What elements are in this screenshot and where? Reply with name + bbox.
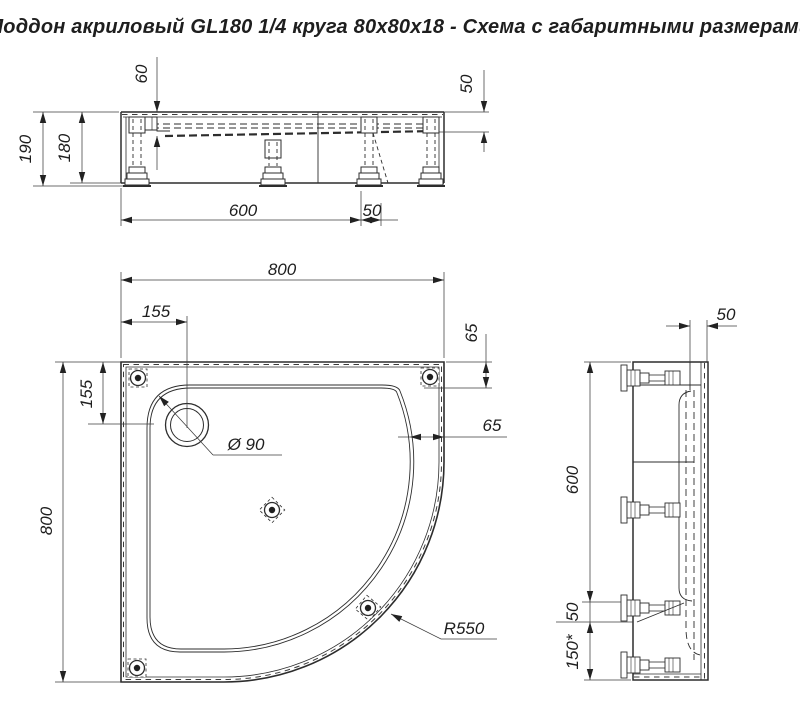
schematic-svg: Поддон акриловый GL180 1/4 круга 80x80x1… (0, 0, 800, 702)
dim-label-drain-offset-x: 155 (142, 302, 171, 321)
dim-plan-rim-side: 65 (398, 416, 507, 440)
side-outline (633, 362, 708, 680)
dim-label-rim-side: 65 (483, 416, 502, 435)
dim-label-bottom-span: 150* (563, 633, 582, 669)
dim-label-upper-span: 600 (563, 465, 582, 494)
dim-plan-overall-depth: 800 (37, 362, 121, 682)
dim-plan-corner-radius: R550 (390, 611, 497, 639)
page-title: Поддон акриловый GL180 1/4 круга 80x80x1… (0, 16, 800, 38)
plan-drain (157, 394, 213, 455)
dim-label-drain-diameter: Ø 90 (227, 435, 265, 454)
dim-front-rim-width: 50 (439, 70, 489, 152)
dim-label-rim-top: 65 (462, 323, 481, 342)
front-view: 60 50 190 180 (16, 57, 489, 226)
side-feet (621, 365, 684, 678)
dim-label-side-rim-width: 50 (717, 305, 736, 324)
dim-label-front-rim-width: 50 (457, 74, 476, 93)
dim-label-basin-depth: 60 (132, 64, 151, 83)
dim-label-overall-depth: 800 (37, 506, 56, 535)
dim-plan-drain-diameter: Ø 90 (213, 435, 282, 455)
dim-front-foot-span: 600 50 (121, 188, 398, 226)
side-basin-profile (679, 391, 692, 601)
dim-label-body-height: 180 (55, 133, 74, 162)
dim-label-corner-radius: R550 (444, 619, 485, 638)
dim-label-foot-offset: 50 (363, 201, 382, 220)
dim-label-foot-span: 600 (229, 201, 258, 220)
dim-label-overall-width: 800 (268, 260, 297, 279)
side-view: 50 600 50 150* (556, 305, 737, 680)
dim-label-foot-gap: 50 (563, 602, 582, 621)
plan-view: Ø 90 800 155 (37, 260, 507, 682)
dim-front-basin-depth: 60 (132, 57, 160, 170)
plan-outer-outline (121, 362, 444, 682)
dim-label-total-height: 190 (16, 134, 35, 163)
front-legs (33, 117, 445, 186)
dim-front-heights: 190 180 (16, 112, 121, 186)
dim-label-drain-offset-y: 155 (77, 379, 96, 408)
dim-side-rim-width: 50 (666, 305, 737, 362)
drawing-page: Поддон акриловый GL180 1/4 круга 80x80x1… (0, 0, 800, 702)
